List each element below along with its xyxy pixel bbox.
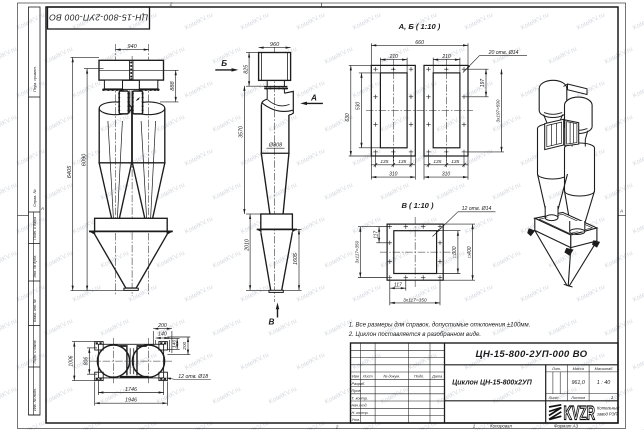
svg-text:2: 2 — [335, 424, 339, 429]
svg-text:117: 117 — [373, 231, 379, 239]
svg-text:1. Все размеры для справок, до: 1. Все размеры для справок, допустимые о… — [349, 321, 531, 328]
svg-text:3570: 3570 — [239, 126, 245, 138]
svg-text:2. Циклон поставляется в разоб: 2. Циклон поставляется в разобранном вид… — [348, 331, 481, 338]
svg-text:2010: 2010 — [244, 239, 250, 252]
svg-text:ЦН-15-800-2УП-000 ВО: ЦН-15-800-2УП-000 ВО — [476, 349, 588, 360]
svg-text:Перв. примен.: Перв. примен. — [32, 66, 37, 92]
svg-text:Дата: Дата — [431, 374, 442, 378]
svg-text:12 отв. Ø18: 12 отв. Ø18 — [178, 374, 208, 380]
svg-text:806: 806 — [84, 357, 90, 366]
svg-text:□300: □300 — [452, 246, 458, 258]
svg-text:Листов: Листов — [570, 396, 585, 400]
svg-text:140: 140 — [158, 331, 167, 337]
svg-text:3x117=350: 3x117=350 — [355, 240, 360, 263]
svg-text:В ( 1:10 ): В ( 1:10 ) — [401, 201, 434, 210]
svg-text:630: 630 — [345, 113, 351, 122]
svg-text:1 : 40: 1 : 40 — [597, 380, 611, 386]
svg-text:12 отв. Ø14: 12 отв. Ø14 — [462, 206, 492, 212]
svg-text:3x197=590: 3x197=590 — [496, 99, 501, 122]
svg-text:1006: 1006 — [69, 355, 75, 366]
svg-text:135: 135 — [451, 159, 459, 165]
svg-text:1: 1 — [611, 395, 613, 400]
svg-text:Н. контр.: Н. контр. — [352, 411, 369, 415]
svg-text:Подп.: Подп. — [414, 374, 424, 378]
svg-text:№ докум.: № докум. — [383, 374, 400, 378]
svg-text:20 отв. Ø14: 20 отв. Ø14 — [488, 50, 519, 56]
svg-text:1746: 1746 — [125, 387, 137, 393]
svg-text:Нач.отд.: Нач.отд. — [352, 404, 368, 408]
svg-text:135: 135 — [433, 159, 441, 165]
svg-text:Пров.: Пров. — [352, 389, 362, 393]
svg-text:Масштаб: Масштаб — [595, 367, 614, 371]
svg-text:А: А — [40, 206, 44, 211]
svg-text:961,0: 961,0 — [571, 380, 585, 386]
svg-text:117: 117 — [394, 283, 402, 289]
svg-text:KVZR: KVZR — [564, 402, 596, 424]
svg-text:310: 310 — [389, 172, 398, 178]
svg-text:6405: 6405 — [67, 165, 73, 178]
svg-text:210: 210 — [389, 54, 399, 60]
svg-text:960: 960 — [270, 42, 280, 48]
svg-text:Копировал: Копировал — [490, 424, 512, 429]
svg-text:Лит.: Лит. — [551, 367, 561, 371]
svg-text:Котельный: Котельный — [597, 406, 620, 411]
svg-text:А: А — [619, 209, 623, 214]
svg-text:Утв.: Утв. — [352, 418, 361, 422]
svg-text:Формат А3: Формат А3 — [554, 424, 579, 429]
svg-text:197: 197 — [480, 79, 486, 88]
svg-text:А, Б ( 1:10 ): А, Б ( 1:10 ) — [398, 22, 441, 31]
svg-text:А: А — [310, 94, 317, 103]
svg-text:ЦН-15-800-2УП-000 ВО: ЦН-15-800-2УП-000 ВО — [49, 13, 148, 23]
svg-text:Лист: Лист — [548, 396, 559, 400]
svg-text:200: 200 — [157, 323, 167, 329]
svg-text:Т. контр.: Т. контр. — [352, 396, 368, 400]
svg-text:1605: 1605 — [293, 253, 299, 265]
svg-text:200: 200 — [182, 341, 188, 350]
svg-text:2: 2 — [169, 2, 173, 7]
svg-text:Ø808: Ø808 — [268, 142, 282, 148]
svg-text:Разраб.: Разраб. — [352, 382, 366, 386]
svg-text:Циклон ЦН-15-800х2УП: Циклон ЦН-15-800х2УП — [452, 379, 533, 386]
svg-text:1946: 1946 — [125, 398, 137, 404]
svg-text:140: 140 — [171, 340, 177, 348]
svg-text:6090: 6090 — [81, 153, 87, 166]
svg-text:135: 135 — [398, 159, 406, 165]
svg-text:940: 940 — [127, 44, 137, 50]
svg-text:Б: Б — [221, 59, 227, 68]
svg-text:□400: □400 — [467, 246, 473, 258]
svg-text:210: 210 — [441, 54, 451, 60]
svg-text:310: 310 — [442, 172, 451, 178]
svg-text:Изм: Изм — [352, 374, 359, 378]
svg-text:завод РЭП: завод РЭП — [596, 412, 617, 417]
svg-text:135: 135 — [380, 159, 388, 165]
svg-text:825: 825 — [243, 65, 249, 74]
svg-text:530: 530 — [356, 102, 362, 111]
svg-text:Лист: Лист — [362, 374, 373, 378]
svg-text:3x117=350: 3x117=350 — [403, 297, 427, 303]
svg-text:Справ. №: Справ. № — [32, 189, 37, 207]
svg-text:Масса: Масса — [573, 367, 584, 371]
svg-text:660: 660 — [415, 40, 424, 46]
svg-text:В: В — [269, 318, 275, 327]
svg-text:888: 888 — [170, 81, 176, 91]
